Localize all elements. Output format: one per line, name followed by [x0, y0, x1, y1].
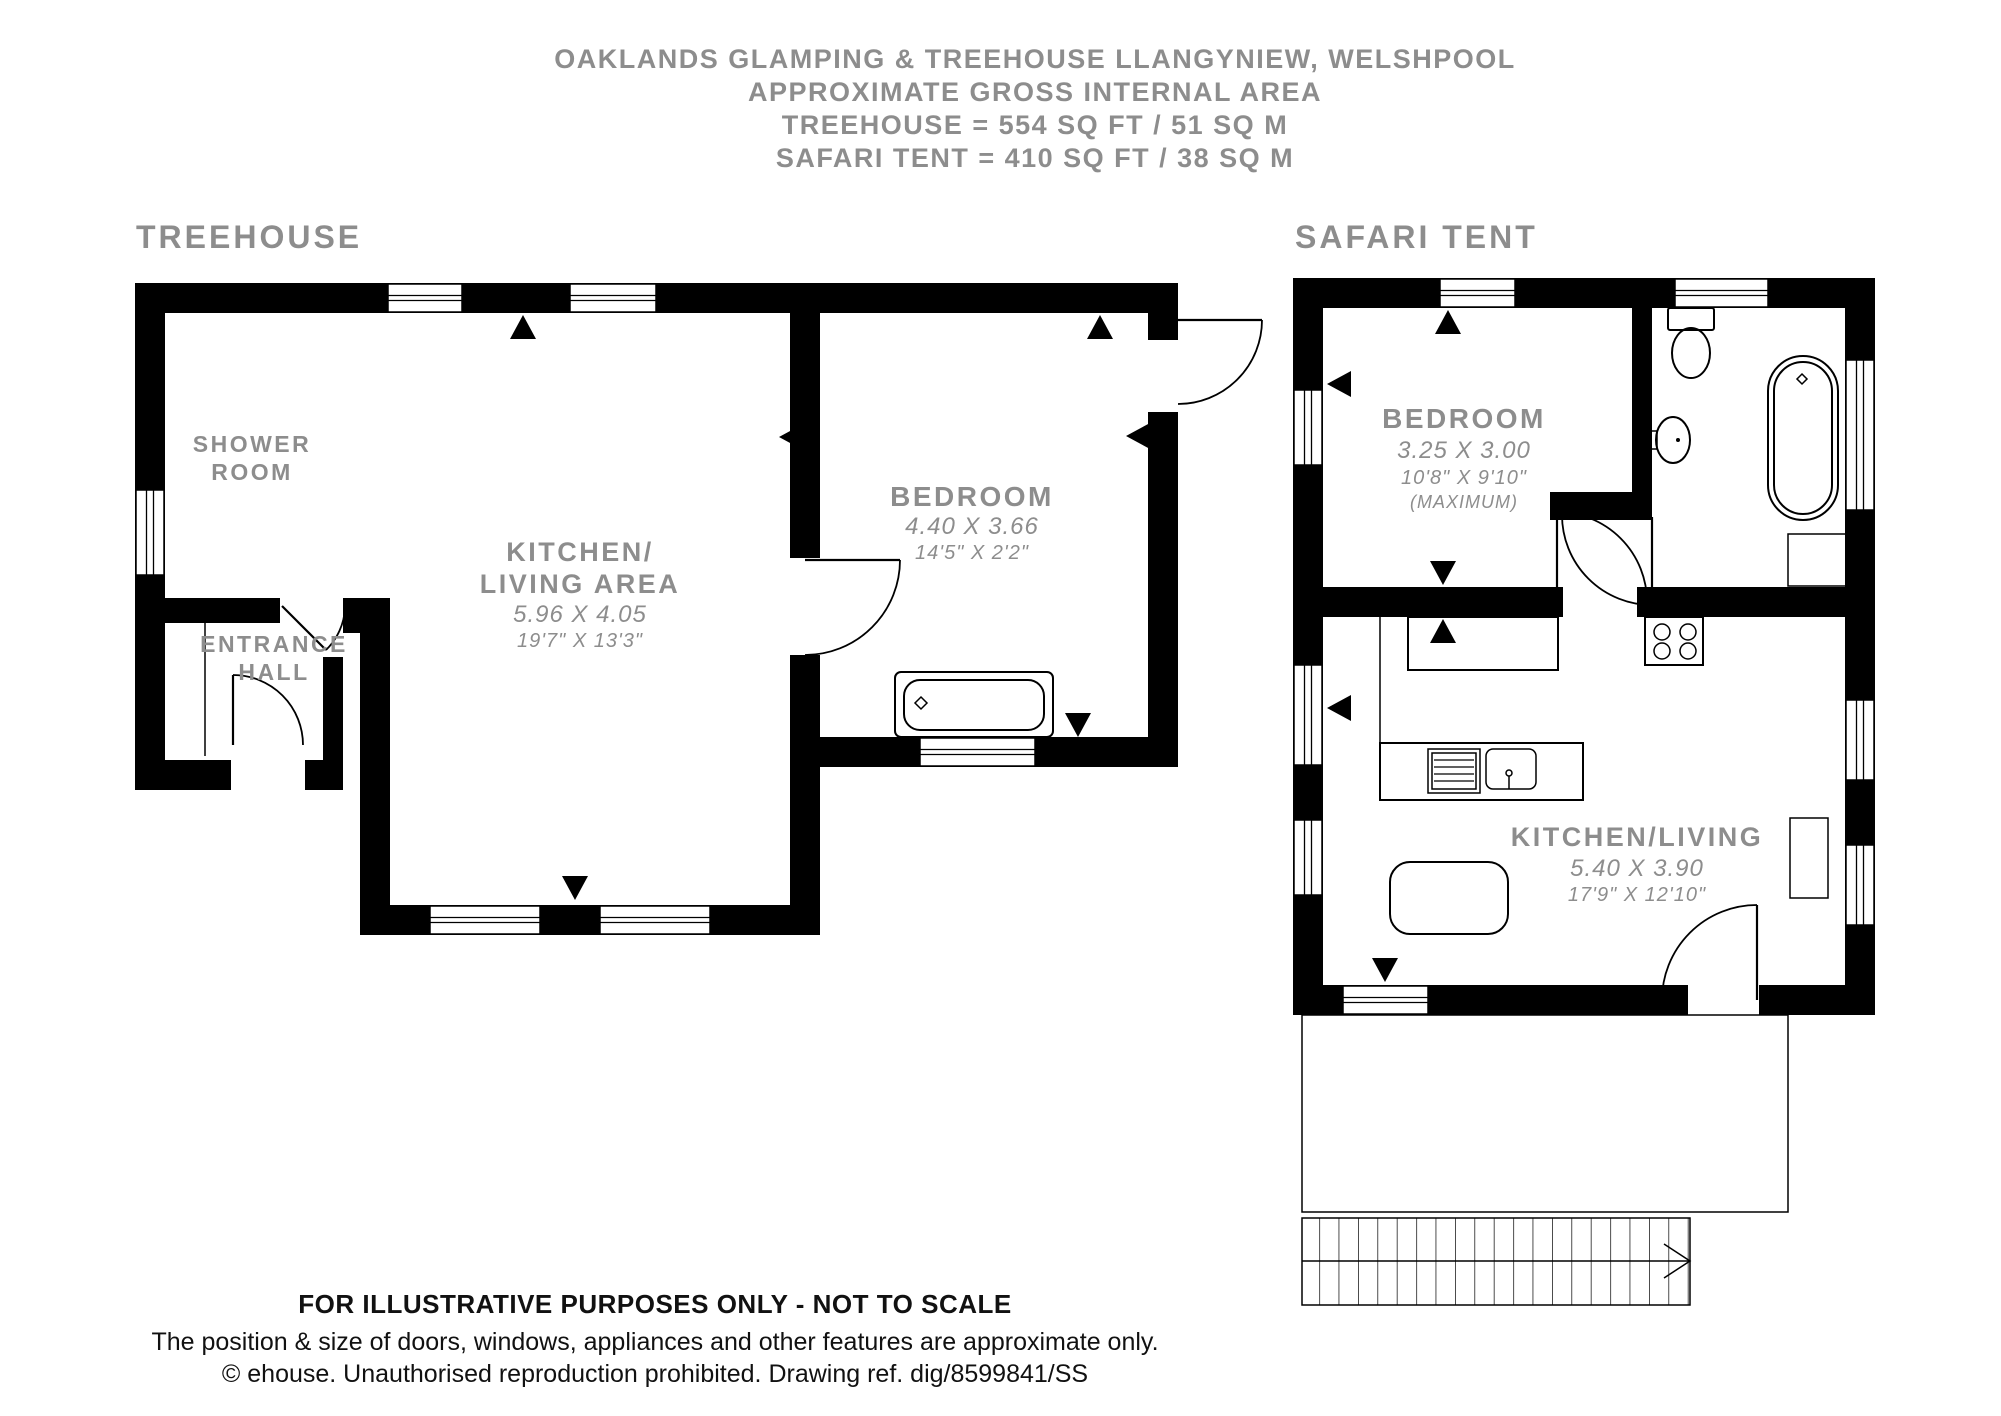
bathtub: [895, 672, 1053, 737]
safari-room-labels: BEDROOM 3.25 X 3.00 10'8" X 9'10" (MAXIM…: [1382, 403, 1763, 906]
door-entrance-hall: [233, 675, 303, 745]
hob: [1645, 617, 1703, 665]
room-dim-bedroom-metric: 4.40 X 3.66: [905, 513, 1039, 540]
room-label-kitchen-living: KITCHEN/LIVING: [1511, 822, 1764, 852]
treehouse-door-gaps: [231, 758, 305, 792]
footer-line-1: FOR ILLUSTRATIVE PURPOSES ONLY - NOT TO …: [298, 1289, 1012, 1319]
floorplan-drawing: OAKLANDS GLAMPING & TREEHOUSE LLANGYNIEW…: [0, 0, 2001, 1416]
treehouse-section-label: TREEHOUSE: [136, 219, 362, 255]
title-line-1: OAKLANDS GLAMPING & TREEHOUSE LLANGYNIEW…: [554, 44, 1516, 74]
safari-door-gaps: [1688, 983, 1759, 1017]
treehouse-walls: [135, 283, 1178, 935]
window: [1846, 845, 1874, 925]
title-line-3: TREEHOUSE = 554 SQ FT / 51 SQ M: [782, 110, 1288, 140]
window: [1846, 700, 1874, 780]
window: [1294, 665, 1322, 765]
window: [570, 284, 656, 312]
window: [1294, 820, 1322, 895]
title-line-2: APPROXIMATE GROSS INTERNAL AREA: [748, 77, 1322, 107]
window: [388, 284, 462, 312]
bathtub-oval: [1768, 356, 1838, 520]
marker-triangle-left: [1327, 371, 1351, 397]
marker-triangle-up: [1430, 619, 1456, 643]
safari-section-label: SAFARI TENT: [1295, 219, 1538, 255]
room-label-bedroom: BEDROOM: [890, 481, 1054, 512]
worktop: [1408, 617, 1558, 670]
room-dim-kitchen-imperial: 19'7" X 13'3": [517, 630, 643, 652]
room-dim-bedroom-note: (MAXIMUM): [1410, 492, 1518, 512]
room-dim-kitchen-metric: 5.40 X 3.90: [1570, 855, 1704, 882]
toilet: [1668, 308, 1714, 378]
room-label-hall-line2: HALL: [238, 659, 309, 685]
room-dim-bedroom-imperial: 10'8" X 9'10": [1401, 467, 1527, 489]
window: [1675, 279, 1768, 307]
basin: [1650, 417, 1690, 463]
footer-line-3: © ehouse. Unauthorised reproduction proh…: [222, 1360, 1088, 1388]
safari-doors: [1557, 512, 1757, 1000]
decking: [1302, 1015, 1788, 1305]
side-unit: [1790, 818, 1828, 898]
safari-tent-plan: SAFARI TENT: [1293, 219, 1875, 1305]
footer-line-2: The position & size of doors, windows, a…: [151, 1328, 1158, 1356]
title-block: OAKLANDS GLAMPING & TREEHOUSE LLANGYNIEW…: [554, 44, 1516, 173]
door-bedroom: [805, 560, 900, 655]
window: [430, 906, 540, 934]
window: [600, 906, 710, 934]
marker-triangle-up: [1435, 310, 1461, 334]
window: [920, 738, 1035, 766]
room-label-kitchen-line1: KITCHEN/: [506, 537, 654, 567]
sofa: [1390, 862, 1508, 934]
treehouse-plan: TREEHOUSE: [135, 219, 1262, 935]
marker-triangle-down: [562, 876, 588, 900]
marker-triangle-left: [1327, 695, 1351, 721]
marker-triangle-down: [1065, 713, 1091, 737]
footer-block: FOR ILLUSTRATIVE PURPOSES ONLY - NOT TO …: [151, 1289, 1158, 1388]
sink: [1486, 749, 1536, 789]
window: [1294, 390, 1322, 465]
room-dim-kitchen-imperial: 17'9" X 12'10": [1568, 884, 1706, 906]
room-dim-bedroom-imperial: 14'5" X 2'2": [915, 542, 1029, 564]
window: [1343, 986, 1428, 1014]
floorplan-page: OAKLANDS GLAMPING & TREEHOUSE LLANGYNIEW…: [0, 0, 2001, 1416]
room-label-shower-line2: ROOM: [211, 459, 293, 485]
window: [136, 490, 164, 575]
decking-outline: [1302, 1015, 1788, 1212]
room-dim-bedroom-metric: 3.25 X 3.00: [1397, 437, 1531, 464]
marker-triangle-left: [1126, 423, 1150, 449]
room-label-shower-line1: SHOWER: [193, 431, 312, 457]
sink-counter: [1380, 743, 1583, 800]
room-dim-kitchen-metric: 5.96 X 4.05: [513, 601, 647, 628]
marker-triangle-down: [1430, 561, 1456, 585]
room-label-hall-line1: ENTRANCE: [200, 631, 348, 657]
title-line-4: SAFARI TENT = 410 SQ FT / 38 SQ M: [776, 143, 1294, 173]
marker-triangle-up: [510, 315, 536, 339]
window: [1440, 279, 1515, 307]
room-label-kitchen-line2: LIVING AREA: [480, 569, 681, 599]
door-main-entry: [1178, 320, 1262, 404]
room-label-bedroom: BEDROOM: [1382, 403, 1546, 434]
marker-triangle-up: [1087, 315, 1113, 339]
window: [1846, 360, 1874, 510]
marker-triangle-down: [1372, 958, 1398, 982]
treehouse-room-labels: SHOWER ROOM ENTRANCE HALL KITCHEN/ LIVIN…: [193, 431, 1054, 685]
